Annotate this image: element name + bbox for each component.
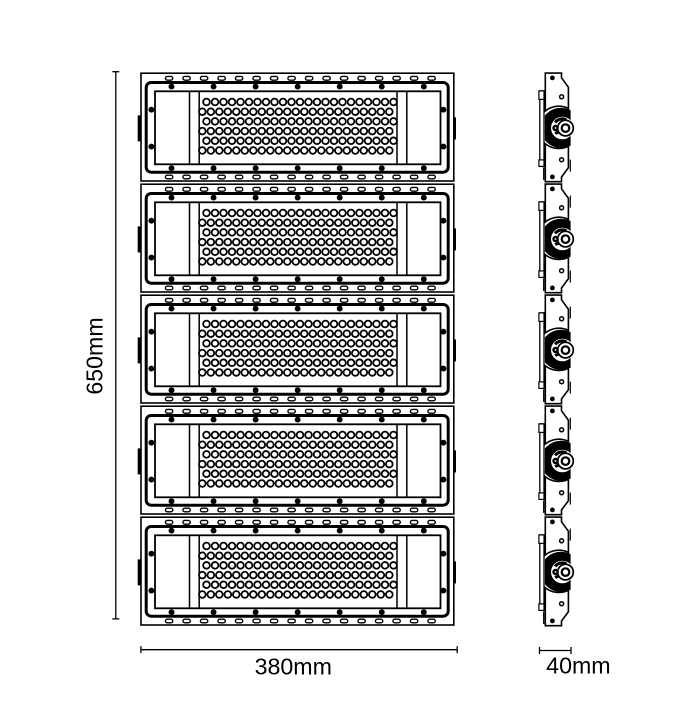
svg-text:40mm: 40mm xyxy=(546,653,610,679)
svg-text:650mm: 650mm xyxy=(82,317,108,394)
svg-text:380mm: 380mm xyxy=(255,654,332,680)
